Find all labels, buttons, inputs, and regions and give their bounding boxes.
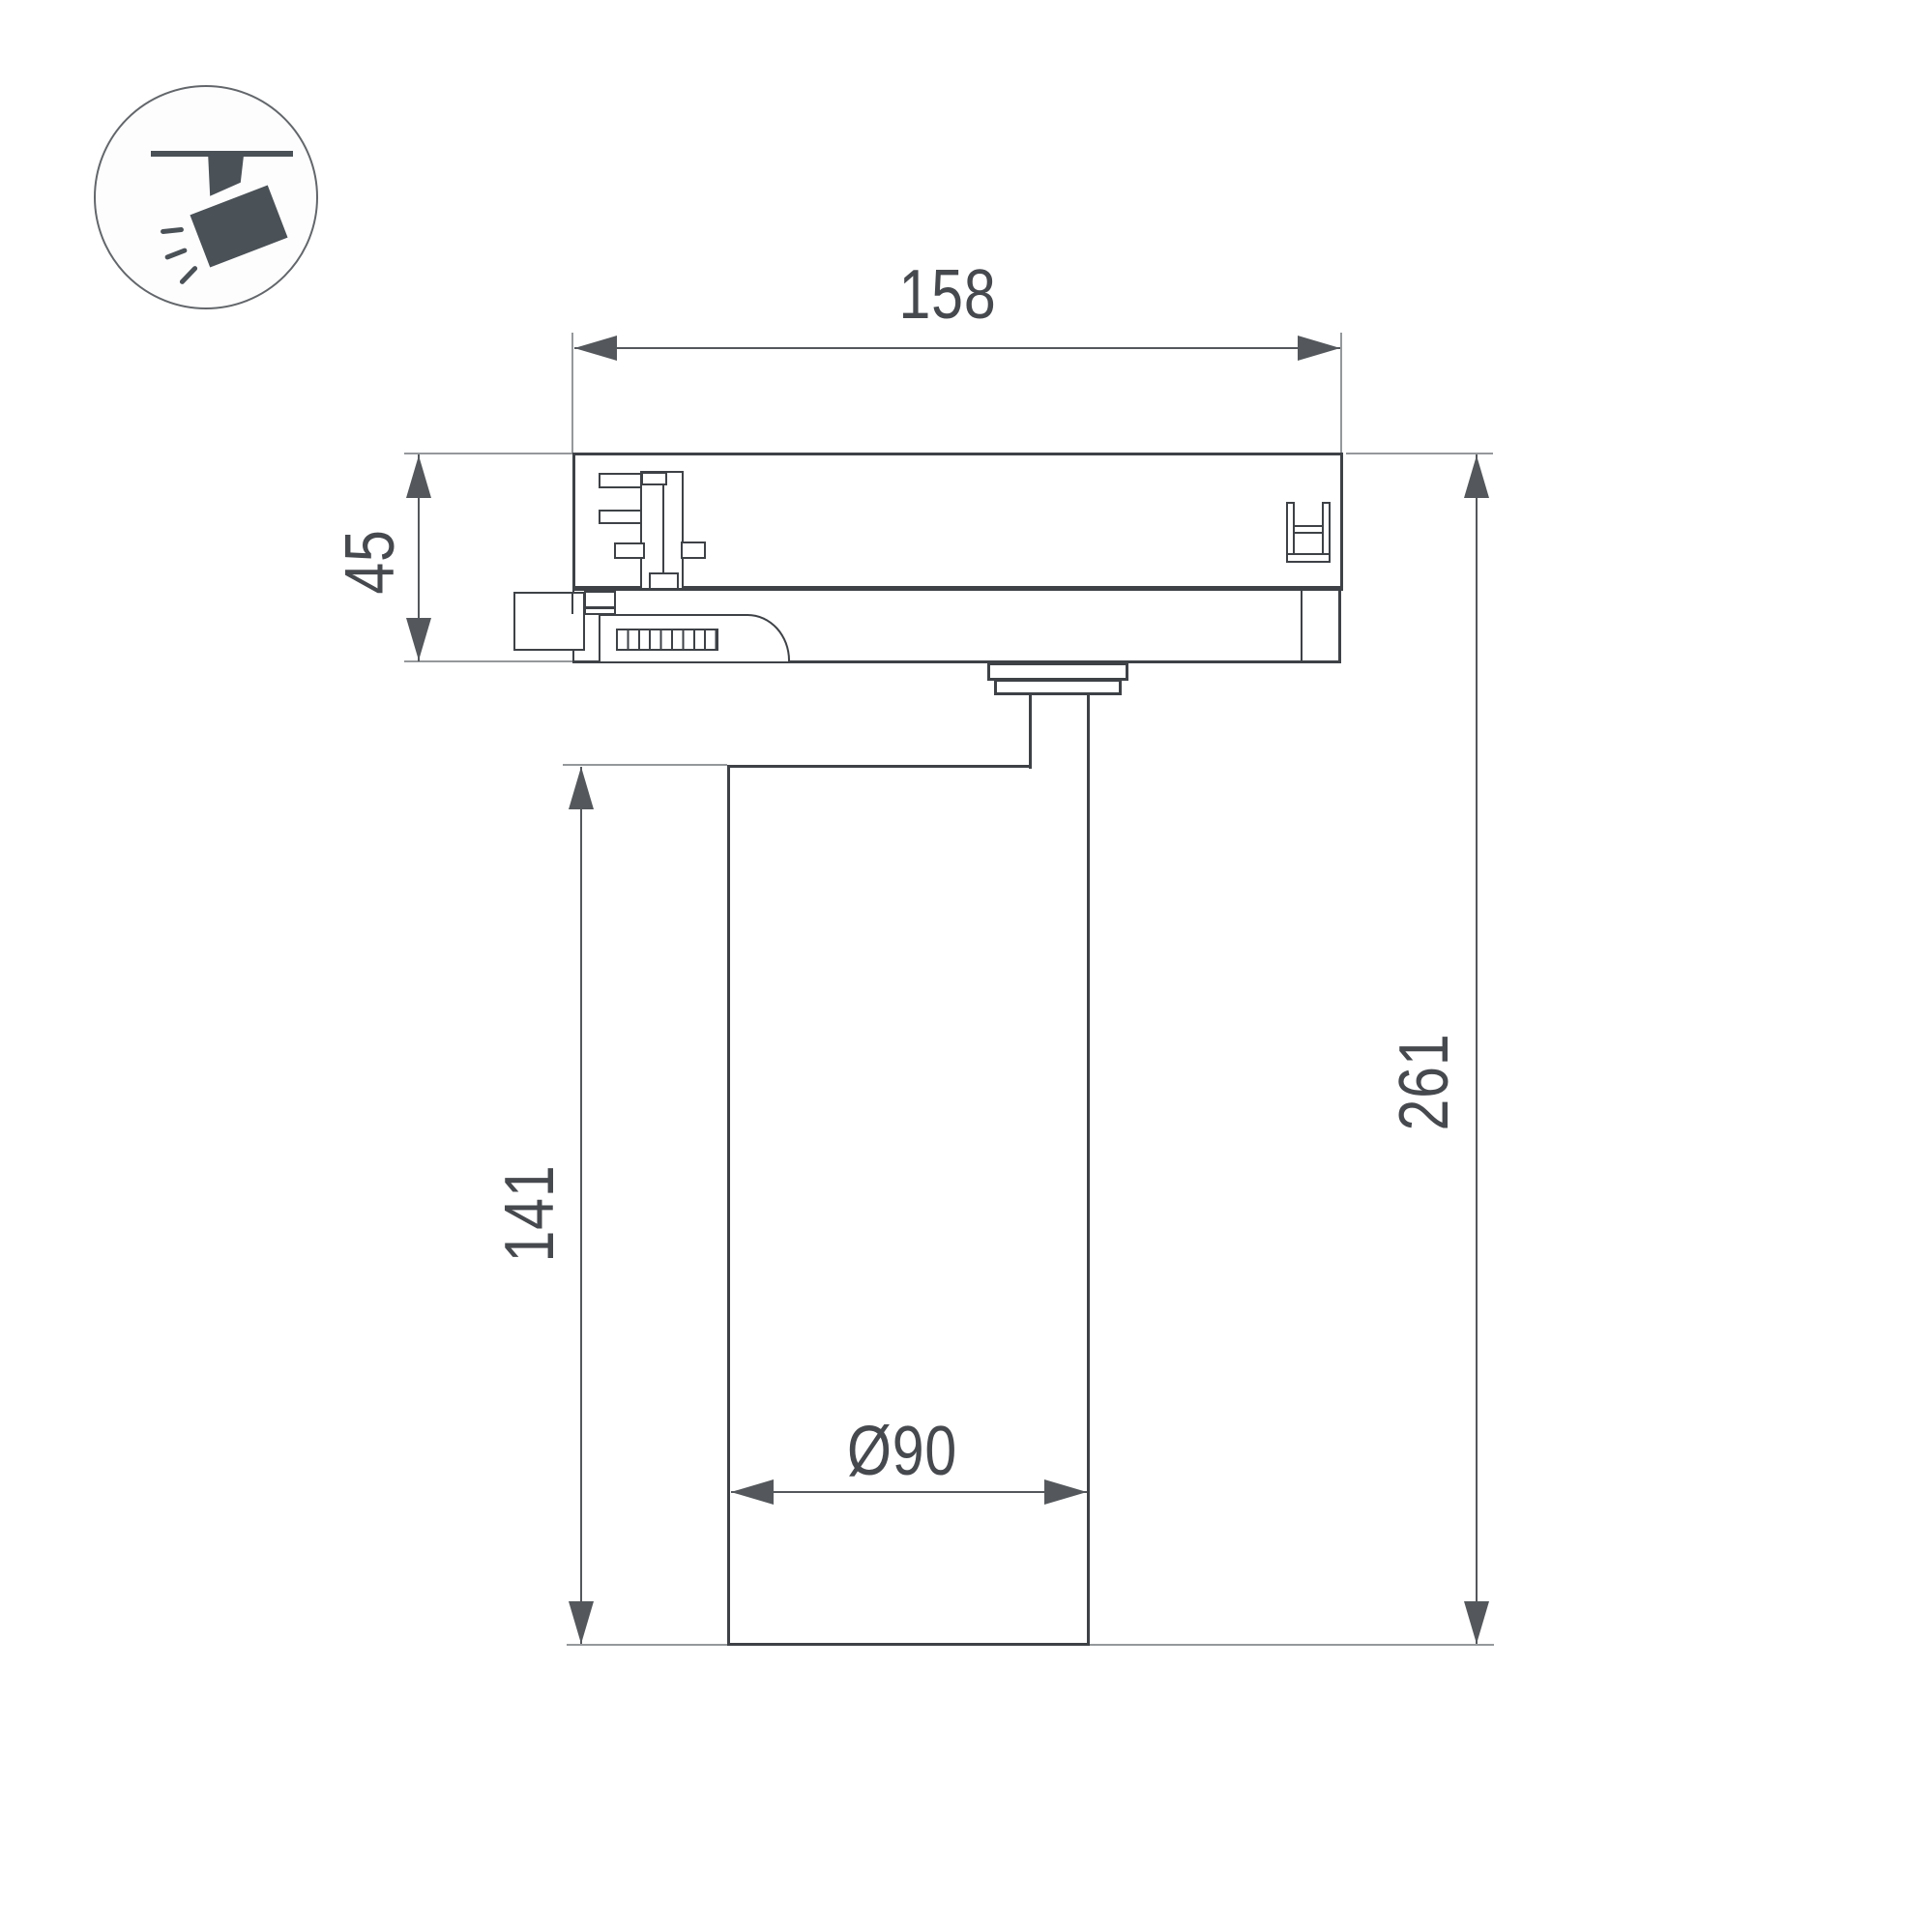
clamp-latch [584, 591, 616, 608]
dim-158-label: 158 [868, 259, 1027, 331]
contact-prong-middle [599, 510, 642, 524]
contact-cap [641, 472, 667, 485]
contact-prong-bottom [614, 542, 645, 559]
dim-141-arrow-down [569, 1601, 594, 1644]
dim-45-arrow-down [406, 618, 431, 660]
mounting-stem [1029, 694, 1090, 769]
dim-261-line [1476, 454, 1478, 1645]
technical-drawing-canvas: 158 45 141 261 [0, 0, 1932, 1932]
track-spotlight-icon [94, 85, 318, 309]
dim-45-arrow-up [406, 455, 431, 498]
dim-158-extension-right [1340, 333, 1342, 454]
contact-prong-top [599, 473, 642, 488]
dim-141-label: 141 [494, 1134, 566, 1293]
adapter-lower-right-edge [1338, 591, 1341, 663]
contact-prong-right [681, 542, 706, 559]
cylinder-body [727, 765, 1090, 1646]
dim-45-extension-bottom [404, 660, 572, 662]
lever-ribbed-grip [616, 629, 718, 651]
dim-261-label: 261 [1389, 1003, 1460, 1161]
dim-d90-line [731, 1491, 1087, 1493]
adapter-housing-outline [572, 453, 1343, 589]
bracket-crossbar [1293, 525, 1324, 534]
dim-d90-label: Ø90 [823, 1416, 981, 1487]
dim-158-arrow-left [574, 336, 617, 361]
stem-flange-lower [994, 679, 1122, 695]
dim-141-line [580, 767, 582, 1645]
dim-45-extension-top [404, 453, 572, 454]
dim-261-arrow-up [1464, 455, 1489, 498]
dim-45-label: 45 [335, 483, 406, 641]
clamp-inner-line [571, 594, 573, 614]
dim-158-line [574, 347, 1340, 349]
dim-d90-arrow-right [1044, 1479, 1087, 1505]
adapter-lower-divider [1301, 591, 1303, 661]
contact-foot [649, 572, 679, 590]
dim-261-arrow-down [1464, 1601, 1489, 1644]
dim-261-extension-top [1346, 453, 1493, 454]
bracket-bottom [1286, 553, 1331, 563]
dim-158-extension-left [571, 333, 573, 454]
clamp-box [513, 592, 585, 651]
contact-carrier-divider [662, 473, 664, 588]
dim-141-extension-top [563, 764, 727, 766]
dim-d90-arrow-left [731, 1479, 774, 1505]
dim-158-arrow-right [1298, 336, 1340, 361]
adapter-mid-line [572, 586, 1343, 591]
dim-141-arrow-up [569, 767, 594, 809]
